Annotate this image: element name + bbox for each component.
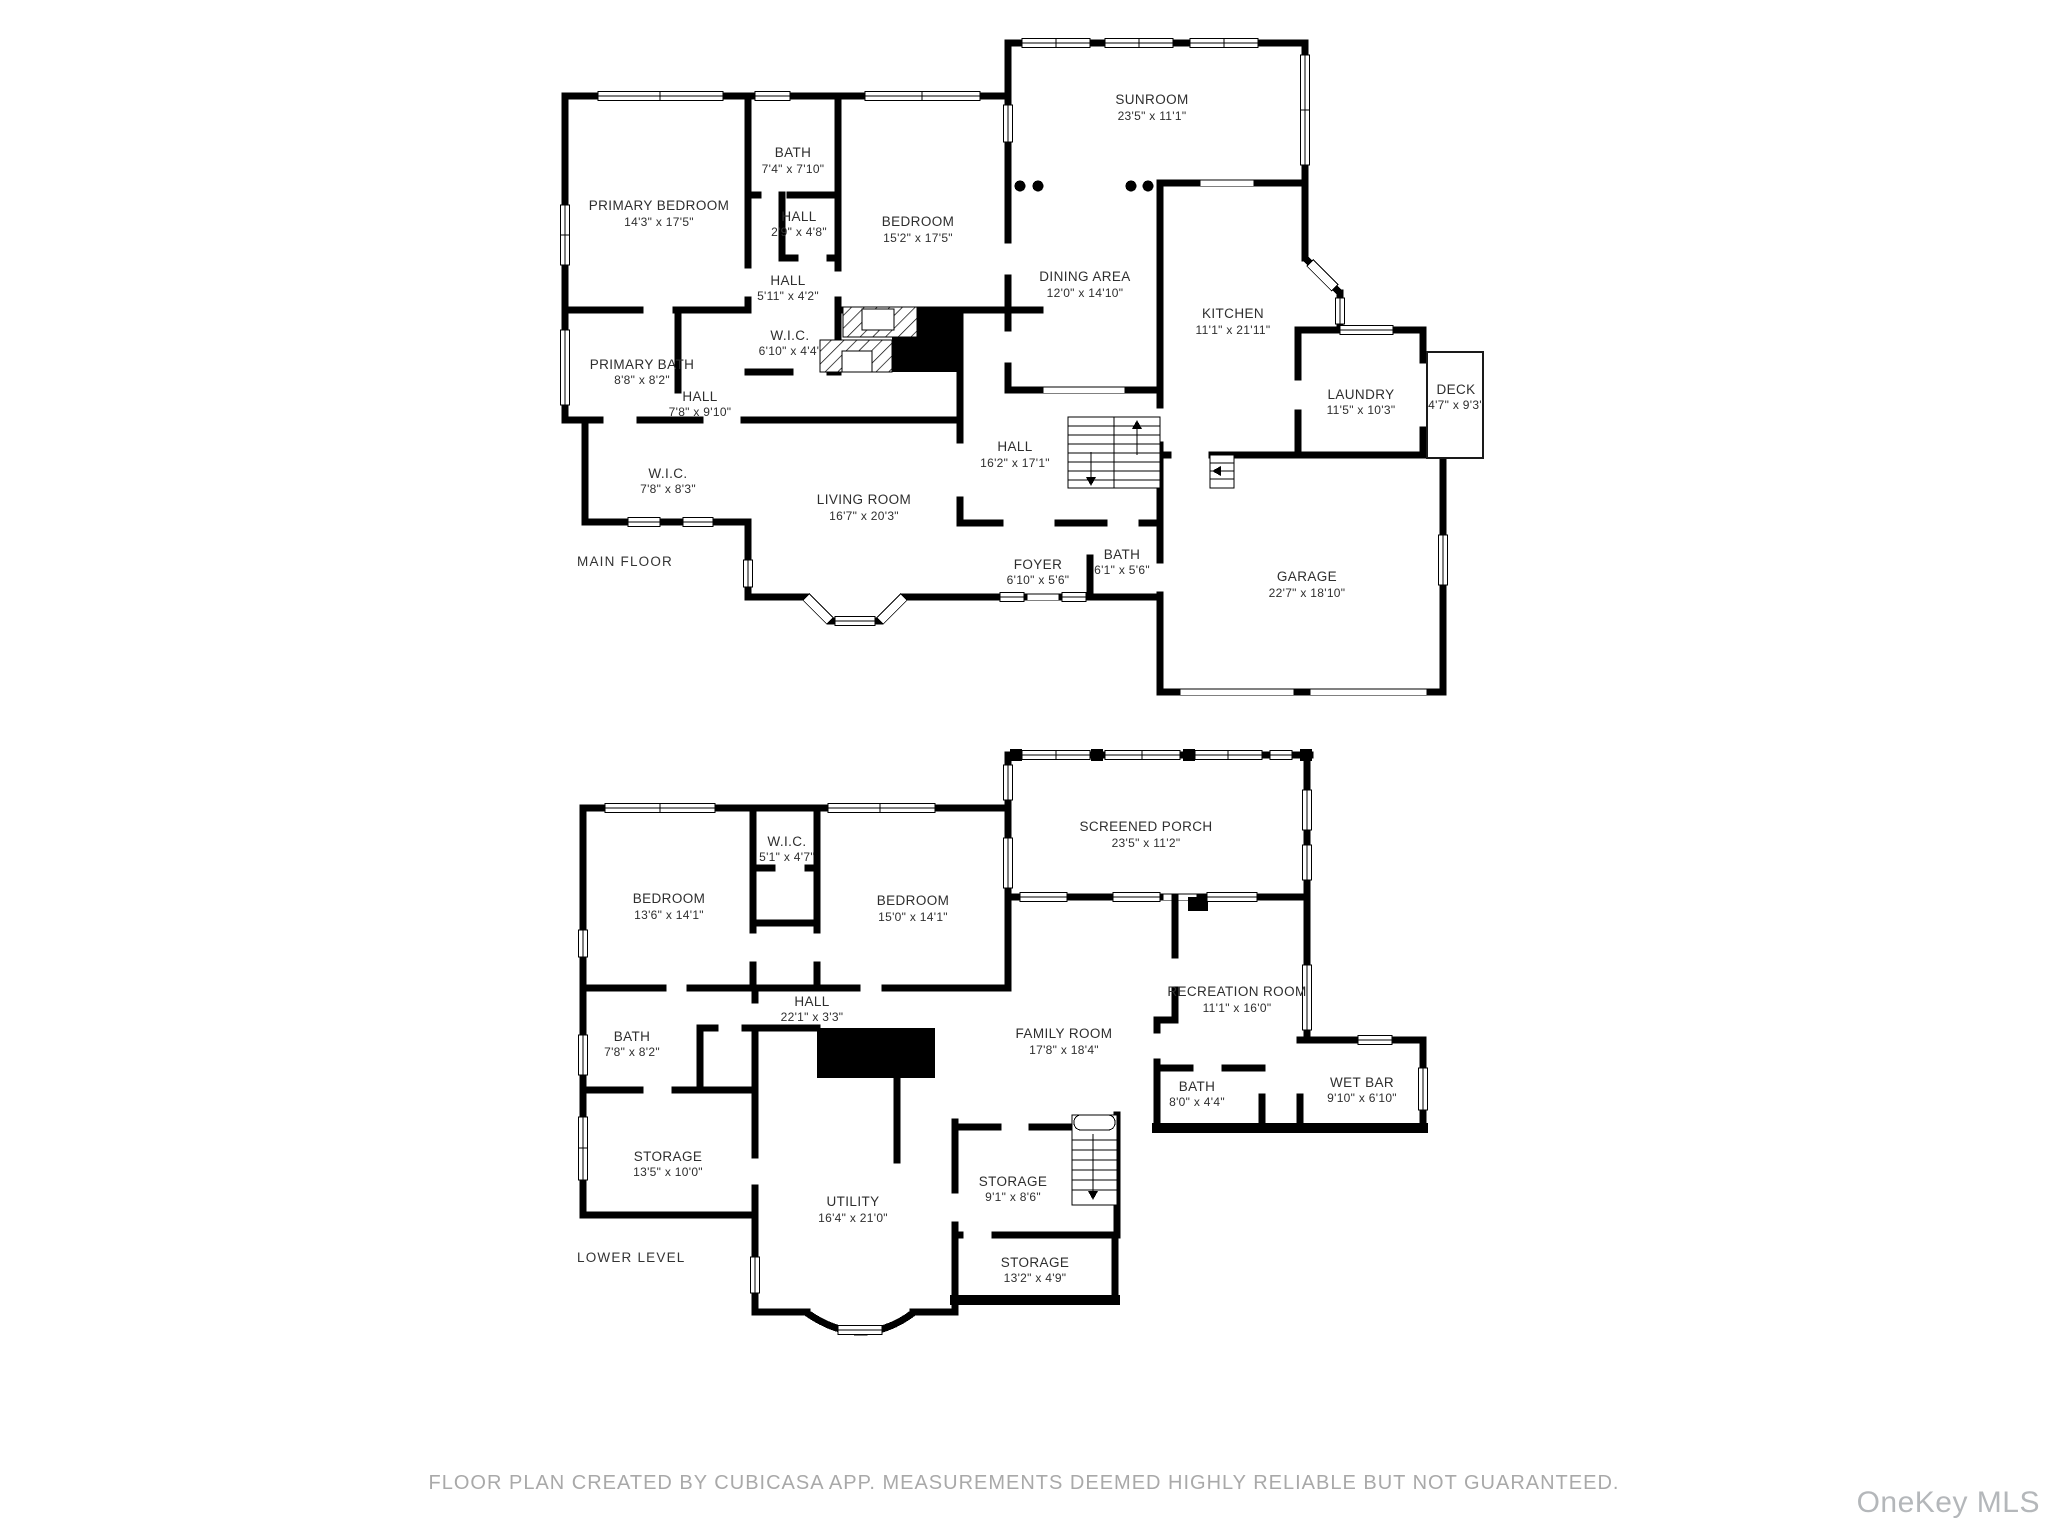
room-label-hall-511: HALL: [770, 273, 805, 288]
floor-plan-drawing: MAIN FLOOR PRIMARY BEDROOM 14'3" x 17'5"…: [0, 0, 2048, 1536]
room-label-living-room: LIVING ROOM: [817, 492, 911, 507]
room-label-wic-ll: W.I.C.: [767, 834, 806, 849]
room-label-bath-ll-1: BATH: [614, 1029, 651, 1044]
room-label-hall-ll: HALL: [794, 994, 829, 1009]
room-dims-deck: 4'7" x 9'3": [1428, 398, 1484, 412]
room-dims-bath-ll-2: 8'0" x 4'4": [1169, 1095, 1225, 1109]
room-label-wic-78: W.I.C.: [648, 466, 687, 481]
room-label-dining-area: DINING AREA: [1039, 269, 1130, 284]
room-dims-bath-main: 6'1" x 5'6": [1094, 563, 1150, 577]
room-dims-storage-91: 9'1" x 8'6": [985, 1190, 1041, 1204]
room-label-laundry: LAUNDRY: [1327, 387, 1394, 402]
room-dims-bedroom-ll-2: 15'0" x 14'1": [878, 910, 948, 924]
room-dims-primary-bath: 8'8" x 8'2": [614, 373, 670, 387]
room-label-bath-upper: BATH: [775, 145, 812, 160]
room-label-bath-main: BATH: [1104, 547, 1141, 562]
room-label-recreation-room: RECREATION ROOM: [1167, 984, 1306, 999]
room-label-kitchen: KITCHEN: [1202, 306, 1264, 321]
room-dims-wet-bar: 9'10" x 6'10": [1327, 1091, 1397, 1105]
room-dims-wic-610: 6'10" x 4'4": [759, 344, 822, 358]
room-dims-wic-ll: 5'1" x 4'7": [759, 850, 815, 864]
room-dims-bedroom-ll-1: 13'6" x 14'1": [634, 908, 704, 922]
room-dims-wic-78: 7'8" x 8'3": [640, 482, 696, 496]
room-label-foyer: FOYER: [1014, 557, 1063, 572]
room-label-bedroom-main: BEDROOM: [882, 214, 955, 229]
room-label-storage-91: STORAGE: [979, 1174, 1048, 1189]
room-dims-sunroom: 23'5" x 11'1": [1118, 109, 1187, 123]
lower-level-plan: [579, 749, 1429, 1335]
room-label-storage-135: STORAGE: [634, 1149, 703, 1164]
room-dims-utility: 16'4" x 21'0": [818, 1211, 888, 1225]
room-dims-hall-ll: 22'1" x 3'3": [781, 1010, 844, 1024]
room-dims-primary-bedroom: 14'3" x 17'5": [624, 215, 694, 229]
room-label-wet-bar: WET BAR: [1330, 1075, 1394, 1090]
room-label-deck: DECK: [1436, 382, 1475, 397]
room-label-utility: UTILITY: [826, 1194, 879, 1209]
room-label-garage: GARAGE: [1277, 569, 1337, 584]
room-label-family-room: FAMILY ROOM: [1016, 1026, 1113, 1041]
room-dims-dining-area: 12'0" x 14'10": [1047, 286, 1124, 300]
room-dims-kitchen: 11'1" x 21'11": [1196, 323, 1271, 337]
room-dims-screened-porch: 23'5" x 11'2": [1112, 836, 1181, 850]
room-dims-family-room: 17'8" x 18'4": [1029, 1043, 1099, 1057]
room-label-sunroom: SUNROOM: [1115, 92, 1188, 107]
floor-plan-page: MAIN FLOOR PRIMARY BEDROOM 14'3" x 17'5"…: [0, 0, 2048, 1536]
room-label-storage-132: STORAGE: [1001, 1255, 1070, 1270]
room-dims-hall-511: 5'11" x 4'2": [757, 289, 819, 303]
room-label-bath-ll-2: BATH: [1179, 1079, 1216, 1094]
room-dims-bath-ll-1: 7'8" x 8'2": [604, 1045, 660, 1059]
room-label-hall-main: HALL: [997, 439, 1032, 454]
room-label-primary-bedroom: PRIMARY BEDROOM: [589, 198, 730, 213]
room-dims-bath-upper: 7'4" x 7'10": [762, 162, 825, 176]
room-dims-hall-small: 2'9" x 4'8": [771, 225, 827, 239]
room-dims-storage-135: 13'5" x 10'0": [633, 1165, 703, 1179]
lower-level-title: LOWER LEVEL: [577, 1250, 686, 1265]
room-dims-storage-132: 13'2" x 4'9": [1004, 1271, 1067, 1285]
room-label-bedroom-ll-2: BEDROOM: [877, 893, 950, 908]
room-label-primary-bath: PRIMARY BATH: [590, 357, 695, 372]
room-dims-hall-main: 16'2" x 17'1": [980, 456, 1050, 470]
room-dims-living-room: 16'7" x 20'3": [829, 509, 899, 523]
room-label-hall-small: HALL: [781, 209, 816, 224]
disclaimer-text: FLOOR PLAN CREATED BY CUBICASA APP. MEAS…: [0, 1472, 2048, 1495]
room-label-screened-porch: SCREENED PORCH: [1079, 819, 1212, 834]
onekey-mls-watermark: OneKey MLS: [1857, 1486, 2040, 1520]
room-dims-foyer: 6'10" x 5'6": [1007, 573, 1070, 587]
room-label-wic-610: W.I.C.: [770, 328, 809, 343]
room-label-hall-78: HALL: [682, 389, 717, 404]
room-dims-recreation-room: 11'1" x 16'0": [1203, 1001, 1272, 1015]
room-dims-bedroom-main: 15'2" x 17'5": [883, 231, 953, 245]
room-dims-laundry: 11'5" x 10'3": [1327, 403, 1396, 417]
room-label-bedroom-ll-1: BEDROOM: [633, 891, 706, 906]
room-dims-garage: 22'7" x 18'10": [1269, 586, 1346, 600]
main-floor-title: MAIN FLOOR: [577, 554, 673, 569]
room-dims-hall-78: 7'8" x 9'10": [669, 405, 732, 419]
